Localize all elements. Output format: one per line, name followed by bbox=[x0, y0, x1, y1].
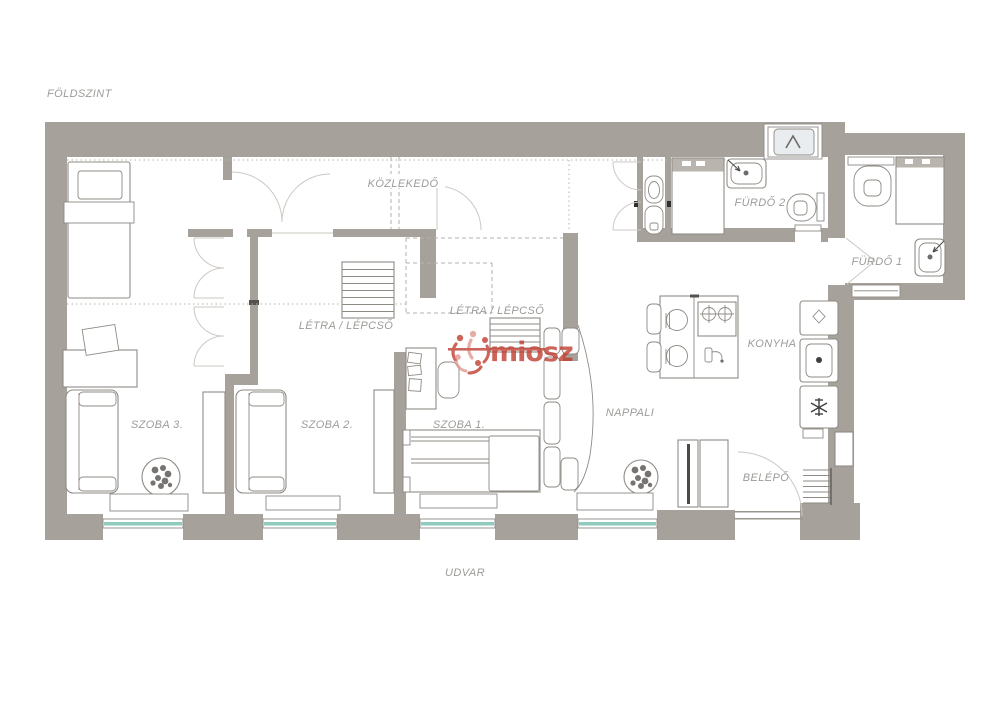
hinge-mark-right bbox=[667, 201, 671, 207]
bathroom1-window bbox=[852, 285, 900, 297]
door-arc bbox=[613, 162, 641, 190]
wall-corner-block bbox=[800, 503, 860, 540]
room-label-bath1: FÜRDŐ 1 bbox=[851, 254, 902, 268]
wall-h3-b bbox=[821, 228, 828, 242]
window-1 bbox=[103, 519, 183, 528]
room-label-stairs-lower: LÉTRA / LÉPCSŐ bbox=[450, 303, 544, 317]
bed-pillow bbox=[78, 171, 122, 199]
door-arc bbox=[194, 238, 224, 268]
door-arc bbox=[437, 186, 481, 230]
wc-fixtures bbox=[645, 176, 663, 234]
sink-icon bbox=[727, 159, 766, 188]
floorplan-canvas: miosz FÖLDSZINT KÖZLEKEDŐ LÉTRA / LÉPCSŐ… bbox=[0, 0, 1000, 704]
room2-furniture bbox=[236, 390, 394, 510]
room3-furniture bbox=[63, 162, 225, 511]
window-2 bbox=[263, 519, 337, 528]
window-3 bbox=[420, 519, 495, 528]
wall-v1-stub bbox=[223, 157, 232, 180]
kitchen-furniture bbox=[647, 295, 838, 439]
wall-v2 bbox=[420, 237, 436, 298]
desk-item bbox=[407, 352, 421, 364]
wall-bottom-3 bbox=[337, 514, 420, 540]
sofa bbox=[236, 390, 286, 493]
radiator-sill bbox=[110, 494, 188, 511]
chair bbox=[647, 304, 661, 334]
bathroom2-fixtures bbox=[672, 158, 824, 234]
desk bbox=[63, 350, 137, 387]
door-arc bbox=[282, 174, 330, 222]
shower bbox=[896, 157, 944, 224]
stairs-upper bbox=[342, 262, 394, 318]
tv-screen bbox=[687, 444, 690, 504]
room-label-room1: SZOBA 1. bbox=[433, 419, 485, 431]
room-label-room2: SZOBA 2. bbox=[301, 419, 353, 431]
chair bbox=[647, 342, 661, 372]
entry-door-threshold bbox=[735, 511, 803, 520]
door-arc bbox=[194, 268, 224, 298]
door-arc bbox=[194, 336, 224, 366]
room-label-stairs-upper: LÉTRA / LÉPCSŐ bbox=[299, 318, 393, 332]
floor-title: FÖLDSZINT bbox=[47, 88, 113, 100]
door-arc bbox=[232, 172, 282, 222]
bed-blanket bbox=[64, 202, 134, 223]
desk-chair bbox=[82, 325, 119, 356]
wall-top bbox=[45, 122, 845, 157]
wall-right-upper bbox=[828, 157, 845, 238]
wardrobe bbox=[374, 390, 394, 493]
shaft bbox=[835, 432, 853, 466]
toilet-icon bbox=[787, 193, 824, 221]
counter-sink bbox=[800, 301, 838, 335]
plant bbox=[142, 458, 180, 496]
watermark-text: miosz bbox=[490, 337, 573, 368]
door-arc bbox=[194, 307, 224, 336]
wall-annex-right bbox=[943, 133, 965, 300]
plant bbox=[624, 460, 658, 494]
room-label-hallway: KÖZLEKEDŐ bbox=[368, 176, 439, 190]
radiator-sill bbox=[266, 496, 340, 510]
desk-item bbox=[409, 379, 422, 392]
wall-wc-left bbox=[637, 157, 643, 228]
wall-bottom-2 bbox=[183, 514, 263, 540]
room-label-entry: BELÉPŐ bbox=[743, 470, 789, 484]
room-label-kitchen: KONYHA bbox=[748, 338, 797, 350]
entry-door-arc bbox=[738, 452, 802, 516]
room-label-bath2: FÜRDŐ 2 bbox=[734, 195, 785, 209]
watermark: miosz bbox=[448, 331, 573, 373]
wall-v1-lower bbox=[225, 383, 234, 514]
sink-icon bbox=[915, 239, 945, 276]
radiator-sill bbox=[577, 493, 653, 510]
room-label-room3: SZOBA 3. bbox=[131, 419, 183, 431]
tv-cabinet bbox=[678, 440, 728, 507]
wall-wc-right bbox=[665, 157, 671, 228]
wall-bottom-1 bbox=[45, 514, 103, 540]
shower bbox=[672, 158, 724, 234]
fridge-freezer bbox=[800, 386, 838, 428]
bed bbox=[403, 430, 540, 492]
wall-left bbox=[45, 122, 67, 540]
courtyard-label: UDVAR bbox=[445, 567, 485, 579]
counter-stove bbox=[800, 339, 838, 382]
radiator-sill bbox=[420, 494, 497, 508]
washer-niche bbox=[764, 124, 822, 159]
desk-chair bbox=[438, 362, 459, 398]
watermark-strike bbox=[448, 348, 548, 351]
watermark-logo-icon bbox=[453, 331, 488, 373]
sofa bbox=[66, 390, 118, 493]
desk-item bbox=[408, 365, 422, 375]
radiator bbox=[803, 468, 831, 505]
wardrobe bbox=[203, 392, 225, 493]
room-label-living: NAPPALI bbox=[606, 407, 654, 419]
cooktop bbox=[698, 302, 736, 336]
wall-v1-mid bbox=[250, 235, 258, 378]
window-4 bbox=[578, 519, 657, 528]
counter-end bbox=[803, 429, 823, 438]
toilet-icon bbox=[854, 166, 891, 206]
wall-bottom-5 bbox=[657, 510, 735, 540]
wall-bottom-4 bbox=[495, 514, 578, 540]
shelf bbox=[848, 157, 894, 165]
wall-h2-a bbox=[188, 229, 233, 237]
bathroom2-door-threshold bbox=[795, 225, 821, 242]
wall-h2-c bbox=[333, 229, 436, 237]
